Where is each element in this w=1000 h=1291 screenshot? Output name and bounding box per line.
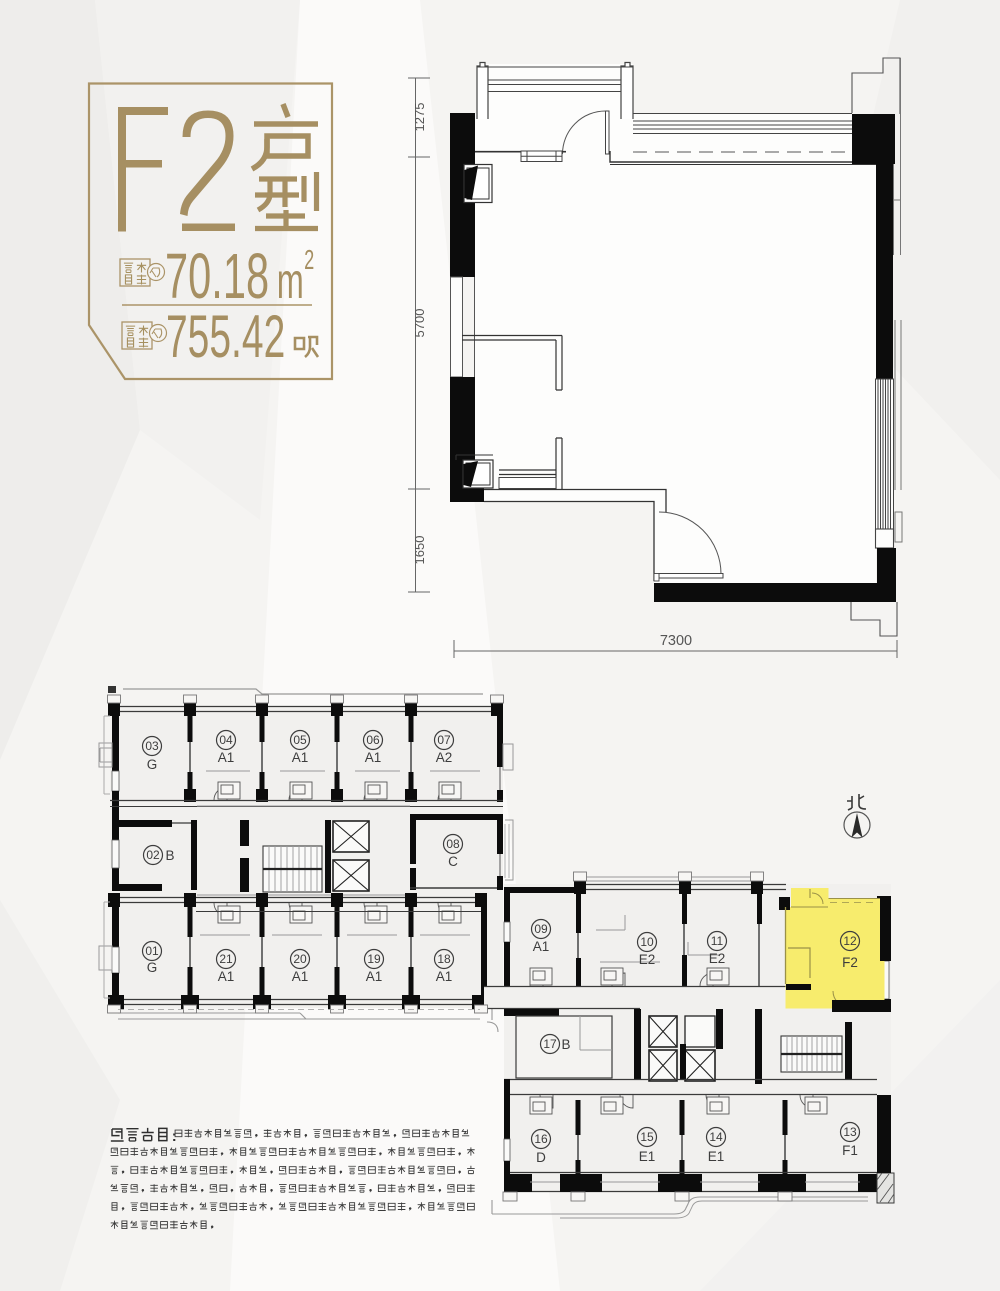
svg-text:13: 13 bbox=[843, 1125, 857, 1139]
svg-text:E2: E2 bbox=[709, 951, 726, 966]
svg-text:A1: A1 bbox=[292, 969, 309, 984]
svg-text:755.42: 755.42 bbox=[166, 302, 285, 370]
svg-text:2: 2 bbox=[304, 245, 314, 276]
svg-text:04: 04 bbox=[219, 733, 233, 747]
svg-text:D: D bbox=[536, 1150, 546, 1165]
svg-text:G: G bbox=[147, 757, 158, 772]
svg-text:01: 01 bbox=[145, 944, 159, 958]
svg-text:18: 18 bbox=[437, 952, 451, 966]
svg-text:A1: A1 bbox=[436, 969, 453, 984]
svg-text:07: 07 bbox=[437, 733, 451, 747]
svg-text:E2: E2 bbox=[639, 952, 656, 967]
svg-text:20: 20 bbox=[293, 952, 307, 966]
svg-text:17: 17 bbox=[543, 1037, 557, 1051]
svg-text:15: 15 bbox=[640, 1130, 654, 1144]
svg-text:1275: 1275 bbox=[412, 103, 427, 132]
svg-text:A1: A1 bbox=[218, 969, 235, 984]
svg-text:F1: F1 bbox=[842, 1143, 858, 1158]
svg-text:m: m bbox=[277, 253, 304, 309]
svg-text:10: 10 bbox=[640, 935, 654, 949]
svg-text:7300: 7300 bbox=[660, 633, 692, 649]
svg-text:5700: 5700 bbox=[412, 309, 427, 338]
svg-text:A1: A1 bbox=[533, 939, 550, 954]
svg-text:03: 03 bbox=[145, 739, 159, 753]
svg-text:B: B bbox=[165, 848, 174, 863]
svg-text:G: G bbox=[147, 960, 158, 975]
svg-text:A1: A1 bbox=[366, 969, 383, 984]
svg-text:E1: E1 bbox=[639, 1149, 656, 1164]
svg-text:A1: A1 bbox=[292, 750, 309, 765]
svg-text:1650: 1650 bbox=[412, 536, 427, 565]
svg-text:08: 08 bbox=[446, 837, 460, 851]
svg-text:C: C bbox=[448, 854, 458, 869]
svg-text:21: 21 bbox=[219, 952, 233, 966]
svg-text:A1: A1 bbox=[365, 750, 382, 765]
svg-text:12: 12 bbox=[843, 934, 857, 948]
svg-text:B: B bbox=[561, 1037, 570, 1052]
svg-text:06: 06 bbox=[366, 733, 380, 747]
svg-text:A1: A1 bbox=[218, 750, 235, 765]
svg-text:11: 11 bbox=[711, 934, 724, 948]
svg-text:19: 19 bbox=[367, 952, 381, 966]
svg-text:05: 05 bbox=[293, 733, 307, 747]
svg-text:09: 09 bbox=[534, 922, 548, 936]
svg-text:02: 02 bbox=[146, 848, 160, 862]
svg-text:14: 14 bbox=[709, 1130, 723, 1144]
svg-text:F2: F2 bbox=[842, 955, 858, 970]
svg-text:E1: E1 bbox=[708, 1149, 725, 1164]
svg-text:A2: A2 bbox=[436, 750, 453, 765]
svg-text:16: 16 bbox=[534, 1132, 548, 1146]
